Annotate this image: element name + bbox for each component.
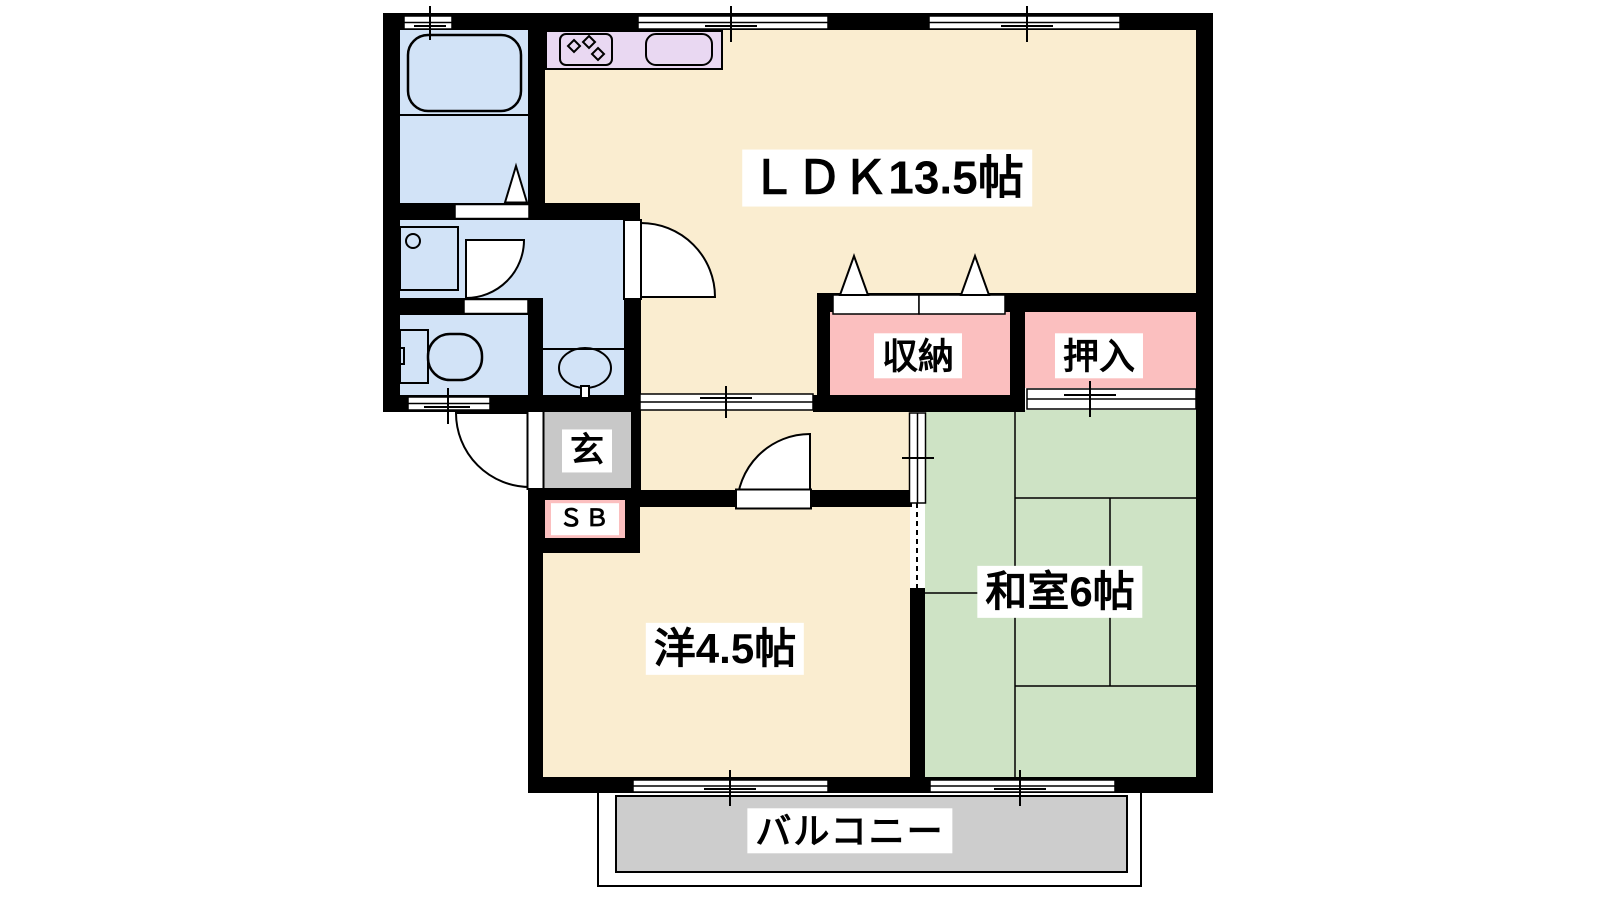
label-shoe-box: ＳＢ — [551, 503, 619, 535]
window-kitchen-top — [638, 6, 828, 42]
washroom-door — [624, 220, 715, 299]
label-balcony: バルコニー — [747, 808, 952, 853]
entrance-door — [456, 411, 544, 489]
bathroom-door — [455, 166, 529, 219]
window-washitsu-balcony — [930, 770, 1115, 806]
label-storage: 収納 — [874, 333, 962, 378]
toilet-icon — [396, 330, 482, 383]
plan-symbols — [0, 0, 1600, 900]
label-washitsu: 和室6帖 — [977, 566, 1142, 618]
vanity-sink-icon — [543, 348, 625, 398]
sliding-door-hall — [640, 386, 813, 418]
fusuma-oshiire — [1027, 381, 1196, 417]
washbasin-icon — [400, 227, 458, 290]
window-western-balcony — [633, 770, 828, 806]
folding-door-storage — [833, 256, 1005, 314]
label-entrance: 玄 — [562, 429, 612, 472]
label-oshiire: 押入 — [1055, 333, 1143, 378]
label-western-room: 洋4.5帖 — [646, 623, 804, 675]
western-room-door — [736, 434, 811, 509]
sliding-door-washitsu — [902, 413, 934, 503]
bathtub-icon — [400, 35, 528, 115]
toilet-door — [464, 240, 528, 314]
stove-burners-icon — [560, 34, 612, 65]
kitchen-sink-icon — [646, 34, 712, 65]
label-ldk: ＬＤＫ13.5帖 — [742, 150, 1032, 207]
floor-plan: ＬＤＫ13.5帖 収納 押入 和室6帖 洋4.5帖 玄 ＳＢ バルコニー — [0, 0, 1600, 900]
window-ldk-top — [929, 6, 1120, 42]
